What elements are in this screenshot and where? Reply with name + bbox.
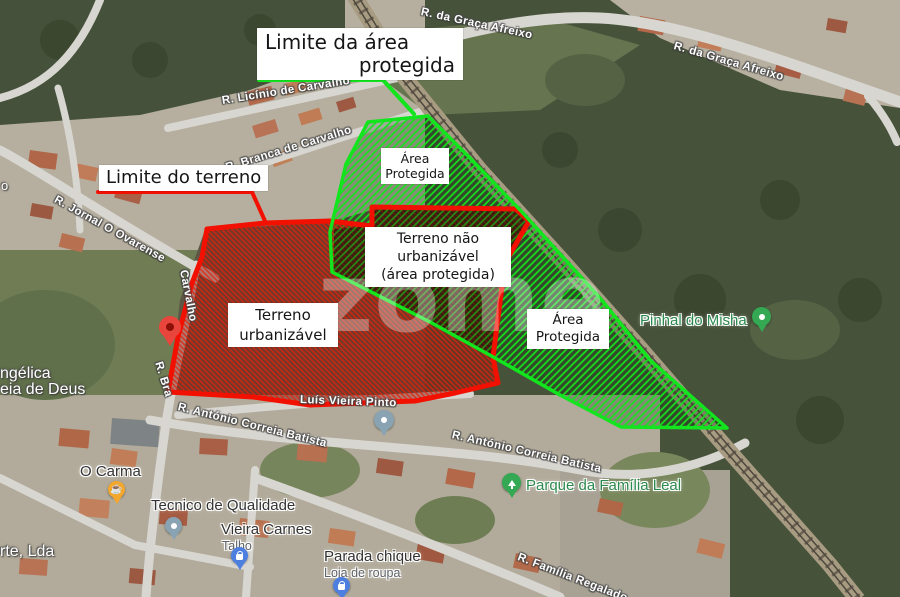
edge-label-eia-de-deus: eia de Deus xyxy=(0,381,85,399)
generic-poi-pin-icon[interactable] xyxy=(165,517,182,534)
label-line: protegida xyxy=(265,54,455,77)
poi-label-parada-chique[interactable]: Parada chique xyxy=(324,548,421,565)
shopping-bag-pin-icon[interactable] xyxy=(333,577,350,594)
label-line: Área xyxy=(383,151,447,166)
label-area-protegida-upper: Área Protegida xyxy=(381,148,449,184)
poi-label-o-carma[interactable]: O Carma xyxy=(80,463,141,480)
edge-label-o: o xyxy=(1,178,8,193)
label-line: urbanizável xyxy=(230,325,336,345)
label-terreno-nao-urbanizavel: Terreno não urbanizável (área protegida) xyxy=(365,227,511,287)
label-limite-area-protegida: Limite da área protegida xyxy=(257,28,463,80)
label-line: urbanizável xyxy=(367,248,509,266)
tree-glyph xyxy=(508,476,516,486)
coffee-pin-icon[interactable]: ☕ xyxy=(108,481,125,498)
coffee-cup-glyph: ☕ xyxy=(110,485,122,495)
label-line: Limite da área xyxy=(265,31,455,54)
label-line: Terreno xyxy=(230,305,336,325)
label-line: Protegida xyxy=(383,166,447,181)
bag-glyph xyxy=(338,584,345,590)
walker-glyph xyxy=(759,314,765,320)
label-line: Área xyxy=(529,312,607,329)
bag-glyph xyxy=(236,554,243,560)
map-canvas xyxy=(0,0,900,597)
satellite-map[interactable]: zome R. da Graça Afreixo R. da Graça Afr… xyxy=(0,0,900,597)
marker-core xyxy=(166,323,174,331)
label-limite-do-terreno: Limite do terreno xyxy=(99,165,268,191)
label-terreno-urbanizavel: Terreno urbanizável xyxy=(228,303,338,347)
generic-poi-pin-icon[interactable] xyxy=(374,410,394,430)
pedestrian-pin-icon[interactable] xyxy=(752,307,771,326)
dot-glyph xyxy=(171,523,177,529)
label-area-protegida-lower: Área Protegida xyxy=(527,309,609,349)
poi-label-tecnico-qualidade[interactable]: Tecnico de Qualidade xyxy=(151,497,295,514)
poi-label-parque-familia-leal[interactable]: Parque da Família Leal xyxy=(526,477,681,494)
edge-label-rte-lda: rte, Lda xyxy=(0,543,54,561)
label-line: (área protegida) xyxy=(367,266,509,284)
poi-label-vieira-carnes[interactable]: Vieira Carnes xyxy=(221,521,312,538)
dot-glyph xyxy=(381,417,387,423)
poi-label-pinhal-do-misha[interactable]: Pinhal do Misha xyxy=(640,312,747,329)
shopping-bag-pin-icon[interactable] xyxy=(231,547,248,564)
label-line: Terreno não xyxy=(367,230,509,248)
label-line: Protegida xyxy=(529,329,607,346)
park-tree-pin-icon[interactable] xyxy=(502,473,521,492)
red-location-marker[interactable] xyxy=(159,316,181,338)
